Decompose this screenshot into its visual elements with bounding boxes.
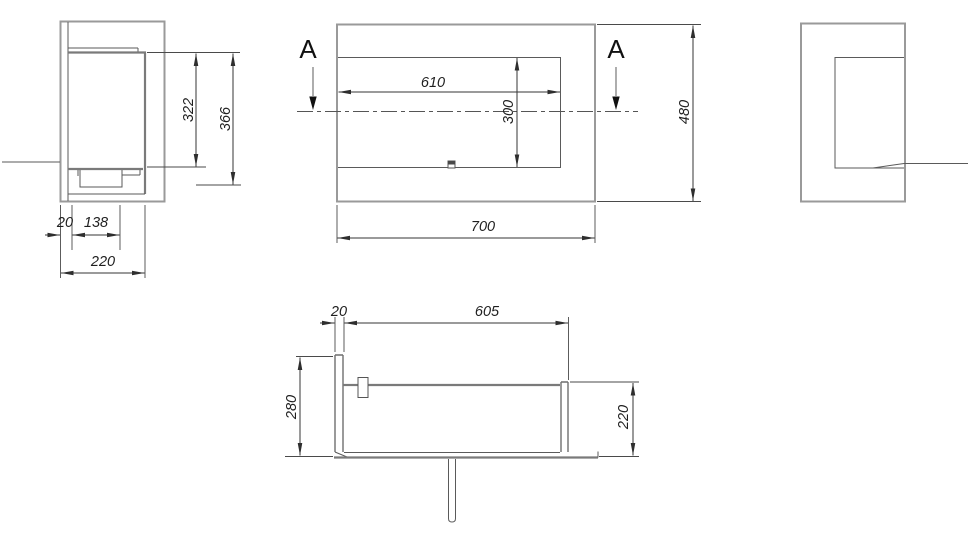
section-bracket: [358, 378, 368, 398]
dim-depth-text: 220: [90, 254, 115, 270]
left-side-view: 322 366 20 138 220: [2, 22, 241, 279]
section-arrow-left-head: [309, 97, 316, 111]
dim-total-height-text: 366: [218, 106, 234, 131]
dim-inner-height-text: 322: [181, 98, 197, 122]
dim-front-height-text: 220: [616, 405, 632, 430]
dim-back-height-text: 280: [284, 395, 300, 420]
front-opening-outline: [338, 58, 561, 168]
right-glass-chamfer: [873, 164, 904, 169]
dim-wall-text: 20: [330, 304, 347, 320]
side-burner-tray: [78, 170, 140, 187]
section-leg-pin: [449, 459, 456, 522]
dim-wall-text: 20: [56, 215, 73, 231]
section-left-wall: [335, 355, 343, 452]
front-outer-outline: [337, 25, 595, 202]
right-outer-outline: [801, 24, 905, 202]
dim-opening-width-text: 610: [421, 75, 445, 91]
section-right-wall: [561, 382, 568, 452]
fireplace-technical-drawing: 322 366 20 138 220 A A 610 300 700: [0, 0, 970, 546]
right-opening-outline: [835, 58, 904, 169]
right-side-view: [801, 24, 968, 202]
dim-opening-height-text: 300: [501, 100, 517, 124]
dim-tray-offset-text: 138: [84, 215, 108, 231]
dim-inner-length-text: 605: [475, 304, 500, 320]
section-label-right: A: [607, 34, 625, 64]
dim-total-width-text: 700: [471, 219, 495, 235]
section-label-left: A: [299, 34, 317, 64]
section-arrow-right-head: [612, 97, 619, 111]
section-view-a-a: 20 605 280 220: [284, 304, 639, 522]
dim-total-height-text: 480: [677, 100, 693, 124]
igniter-box-top: [448, 161, 455, 165]
technical-drawing-page: 322 366 20 138 220 A A 610 300 700: [0, 0, 970, 546]
front-view: A A 610 300 700 480: [297, 25, 701, 244]
